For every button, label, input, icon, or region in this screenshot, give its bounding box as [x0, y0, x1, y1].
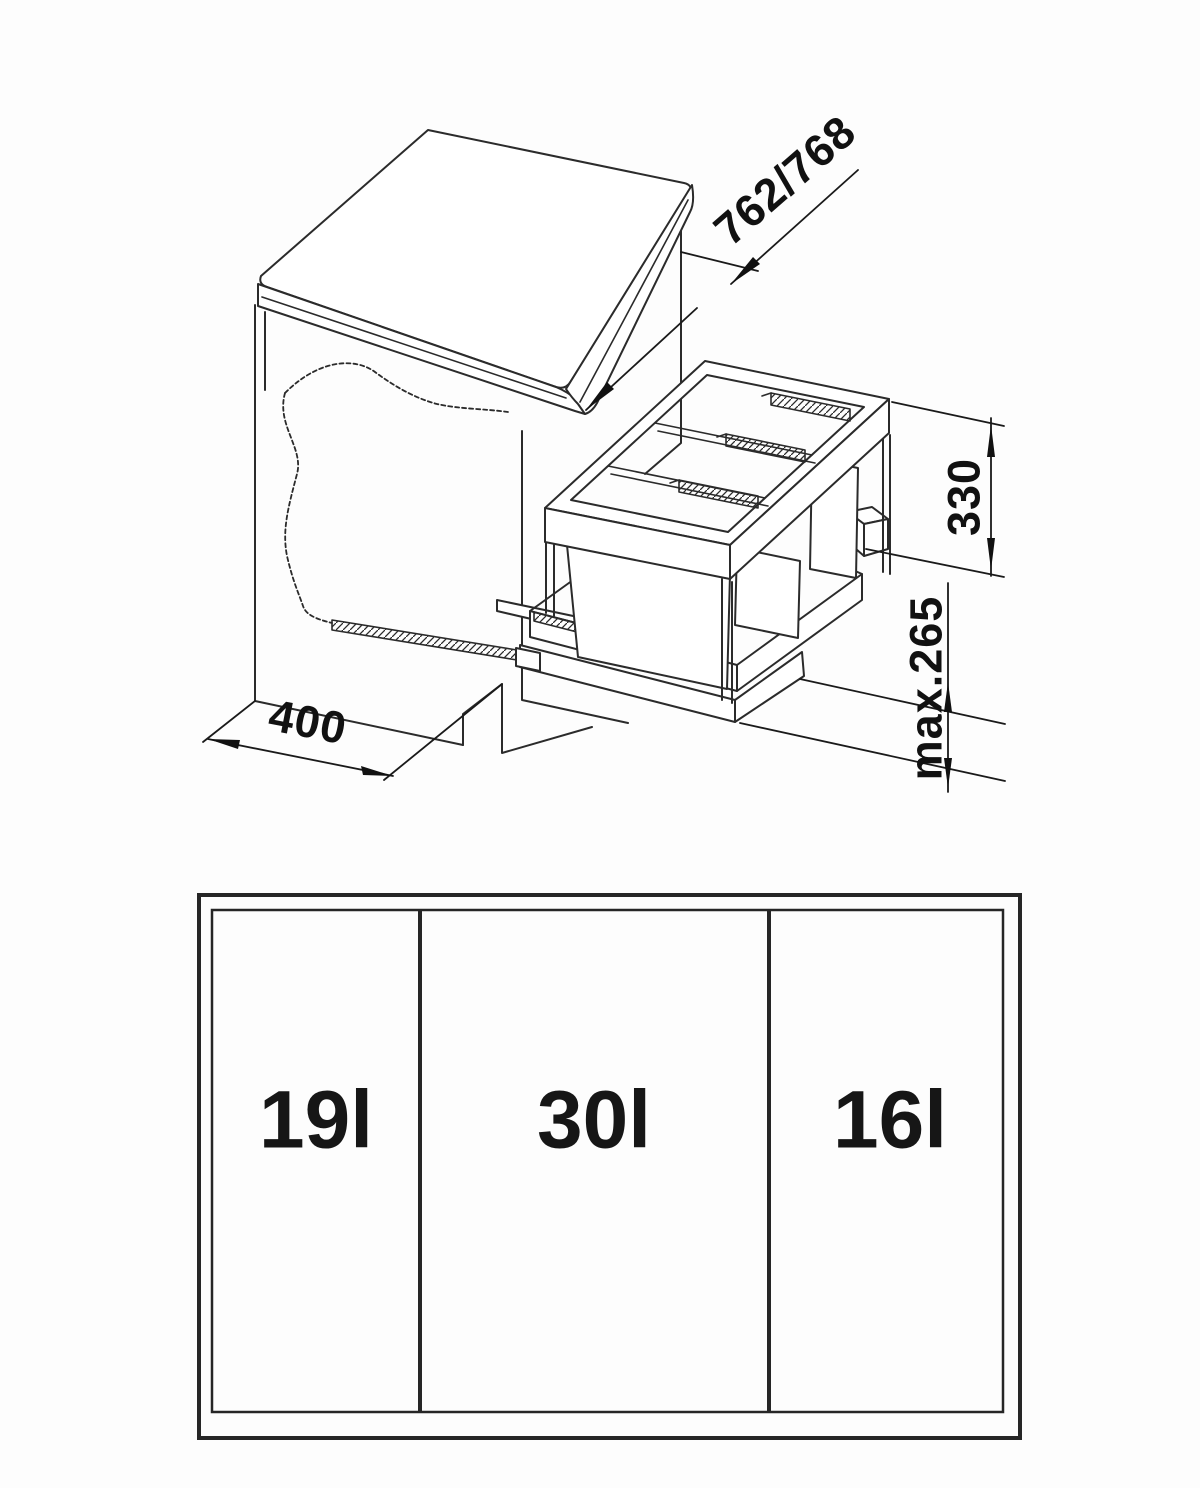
dim-400-ext-left	[203, 701, 255, 742]
plan-view: 19l 30l 16l	[199, 895, 1020, 1438]
countertop-top-face	[260, 130, 691, 388]
dim-330-ext-top	[892, 402, 1004, 426]
arrowhead	[987, 538, 995, 570]
compartment-label-30l: 30l	[537, 1075, 651, 1166]
grip-middle	[726, 434, 805, 462]
grip-front	[679, 480, 758, 508]
arrowhead	[208, 739, 240, 749]
compartment-label-16l: 16l	[833, 1075, 947, 1166]
base-left-bracket	[516, 648, 540, 671]
dim-depth-label: 762/768	[704, 105, 866, 255]
dim-frame-height-label: 330	[939, 458, 990, 536]
isometric-cabinet-drawing: 762/768 330 max.265	[203, 105, 1005, 792]
plan-outer-frame	[199, 895, 1020, 1438]
diagram-page: 762/768 330 max.265	[0, 0, 1200, 1488]
compartment-label-19l: 19l	[259, 1075, 373, 1166]
post-left	[546, 542, 554, 616]
arrowhead	[987, 425, 995, 457]
dim-265-ref-bottom	[740, 723, 1005, 781]
cutaway-break-lines	[283, 363, 508, 623]
dim-width-label: 400	[265, 689, 351, 754]
break-line-left	[283, 393, 332, 623]
dim-330-ext-bottom	[866, 549, 1004, 577]
cabinet-plinth	[463, 684, 592, 753]
floor-rail	[332, 620, 517, 660]
grip-back-step	[762, 393, 771, 396]
grip-front-step	[670, 480, 679, 483]
dimension-width: 400	[203, 684, 502, 780]
dim-max-bin-height-label: max.265	[901, 596, 952, 781]
technical-drawing: 762/768 330 max.265	[0, 0, 1200, 1488]
